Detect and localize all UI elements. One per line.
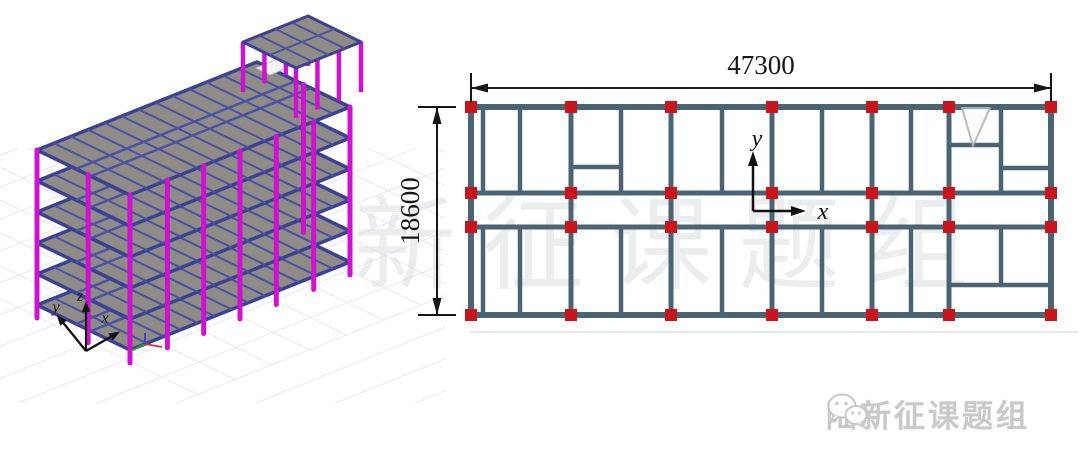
column-marker (465, 309, 477, 321)
column-marker (465, 101, 477, 113)
column-marker (943, 101, 955, 113)
column-marker (665, 101, 677, 113)
column-marker (665, 309, 677, 321)
column-marker (1045, 101, 1057, 113)
plan-x-label: x (817, 199, 829, 225)
plan-y-label: y (750, 126, 763, 152)
column-marker (465, 221, 477, 233)
dim-arrow-top (433, 107, 442, 124)
plan-axes: xy (748, 126, 829, 225)
column-marker (665, 187, 677, 199)
column-marker (943, 187, 955, 199)
column-marker (766, 221, 778, 233)
stair-mark-icon (962, 108, 990, 146)
column-marker (866, 187, 878, 199)
dim-width-label: 47300 (727, 50, 795, 80)
column-marker (465, 187, 477, 199)
dim-arrow-bottom (433, 298, 442, 315)
column-marker (1045, 309, 1057, 321)
figure-canvas: 陆新征课题组 zyx 4730018600xy 陆新征课题组 (0, 0, 1080, 468)
column-marker (766, 101, 778, 113)
floor-plan-diagram: 4730018600xy (0, 0, 1080, 468)
column-marker (766, 187, 778, 199)
column-marker (665, 221, 677, 233)
dim-height-label: 18600 (395, 177, 425, 245)
column-marker (565, 101, 577, 113)
dim-arrow-left (471, 84, 488, 93)
column-marker (866, 101, 878, 113)
dim-arrow-right (1034, 84, 1051, 93)
column-marker (766, 309, 778, 321)
column-marker (1045, 221, 1057, 233)
column-marker (866, 309, 878, 321)
column-marker (866, 221, 878, 233)
column-marker (565, 309, 577, 321)
plan-y-arrowhead (748, 151, 758, 166)
column-marker (565, 187, 577, 199)
column-marker (943, 309, 955, 321)
column-marker (565, 221, 577, 233)
column-marker (943, 221, 955, 233)
column-marker (1045, 187, 1057, 199)
plan-x-arrowhead (791, 206, 806, 216)
